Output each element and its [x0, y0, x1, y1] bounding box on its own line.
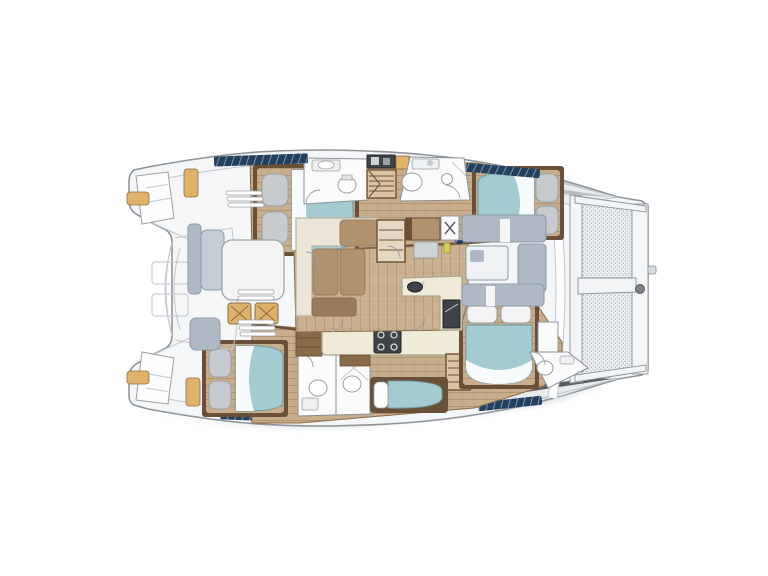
locker — [396, 156, 409, 169]
bow-cleat — [648, 266, 656, 274]
sink — [442, 174, 453, 185]
pillow — [209, 381, 231, 409]
saloon — [294, 216, 468, 332]
pillow — [501, 305, 531, 323]
sofa-cushion — [340, 220, 378, 246]
sink — [302, 398, 318, 410]
toilet — [309, 380, 327, 396]
floorplan-svg — [0, 0, 768, 576]
pillow — [262, 212, 288, 244]
pillow — [374, 382, 388, 408]
sofa-cushion — [313, 249, 338, 295]
nav-seat — [414, 242, 438, 258]
cockpit-lounge-fwd — [188, 224, 224, 294]
forestay-fitting — [636, 285, 645, 294]
swim-pad — [186, 378, 200, 406]
galley-shelf — [296, 330, 322, 356]
pillow — [209, 349, 231, 377]
sink — [318, 161, 334, 169]
coffee-table — [312, 298, 356, 316]
pillow — [262, 174, 288, 206]
toilet — [343, 376, 361, 392]
sink — [560, 356, 574, 364]
pillow — [536, 174, 558, 202]
forward-cockpit — [462, 215, 546, 306]
toilet — [402, 173, 422, 191]
catamaran-floorplan-canvas — [0, 0, 768, 576]
bow-trampoline — [570, 195, 656, 383]
seat-pad — [470, 250, 484, 262]
cockpit-lounge-aft — [190, 318, 220, 350]
equipment — [444, 243, 450, 253]
stairs-port — [367, 170, 396, 198]
stove — [374, 329, 401, 353]
wardrobe — [538, 322, 558, 352]
bench — [462, 284, 544, 306]
port-aft-head — [304, 158, 368, 204]
port-fwd-head — [400, 157, 470, 201]
pillow — [467, 305, 497, 323]
transom-handle — [127, 192, 149, 205]
saloon-steps — [377, 220, 405, 262]
trampoline-center-bar — [578, 278, 636, 294]
transom-handle — [127, 371, 149, 384]
stbd-aft-cabin — [202, 340, 288, 417]
sink — [408, 282, 423, 292]
sofa-cushion — [340, 249, 365, 295]
single-berth — [370, 377, 448, 413]
single-bed — [388, 381, 442, 408]
swim-pad — [184, 169, 198, 197]
